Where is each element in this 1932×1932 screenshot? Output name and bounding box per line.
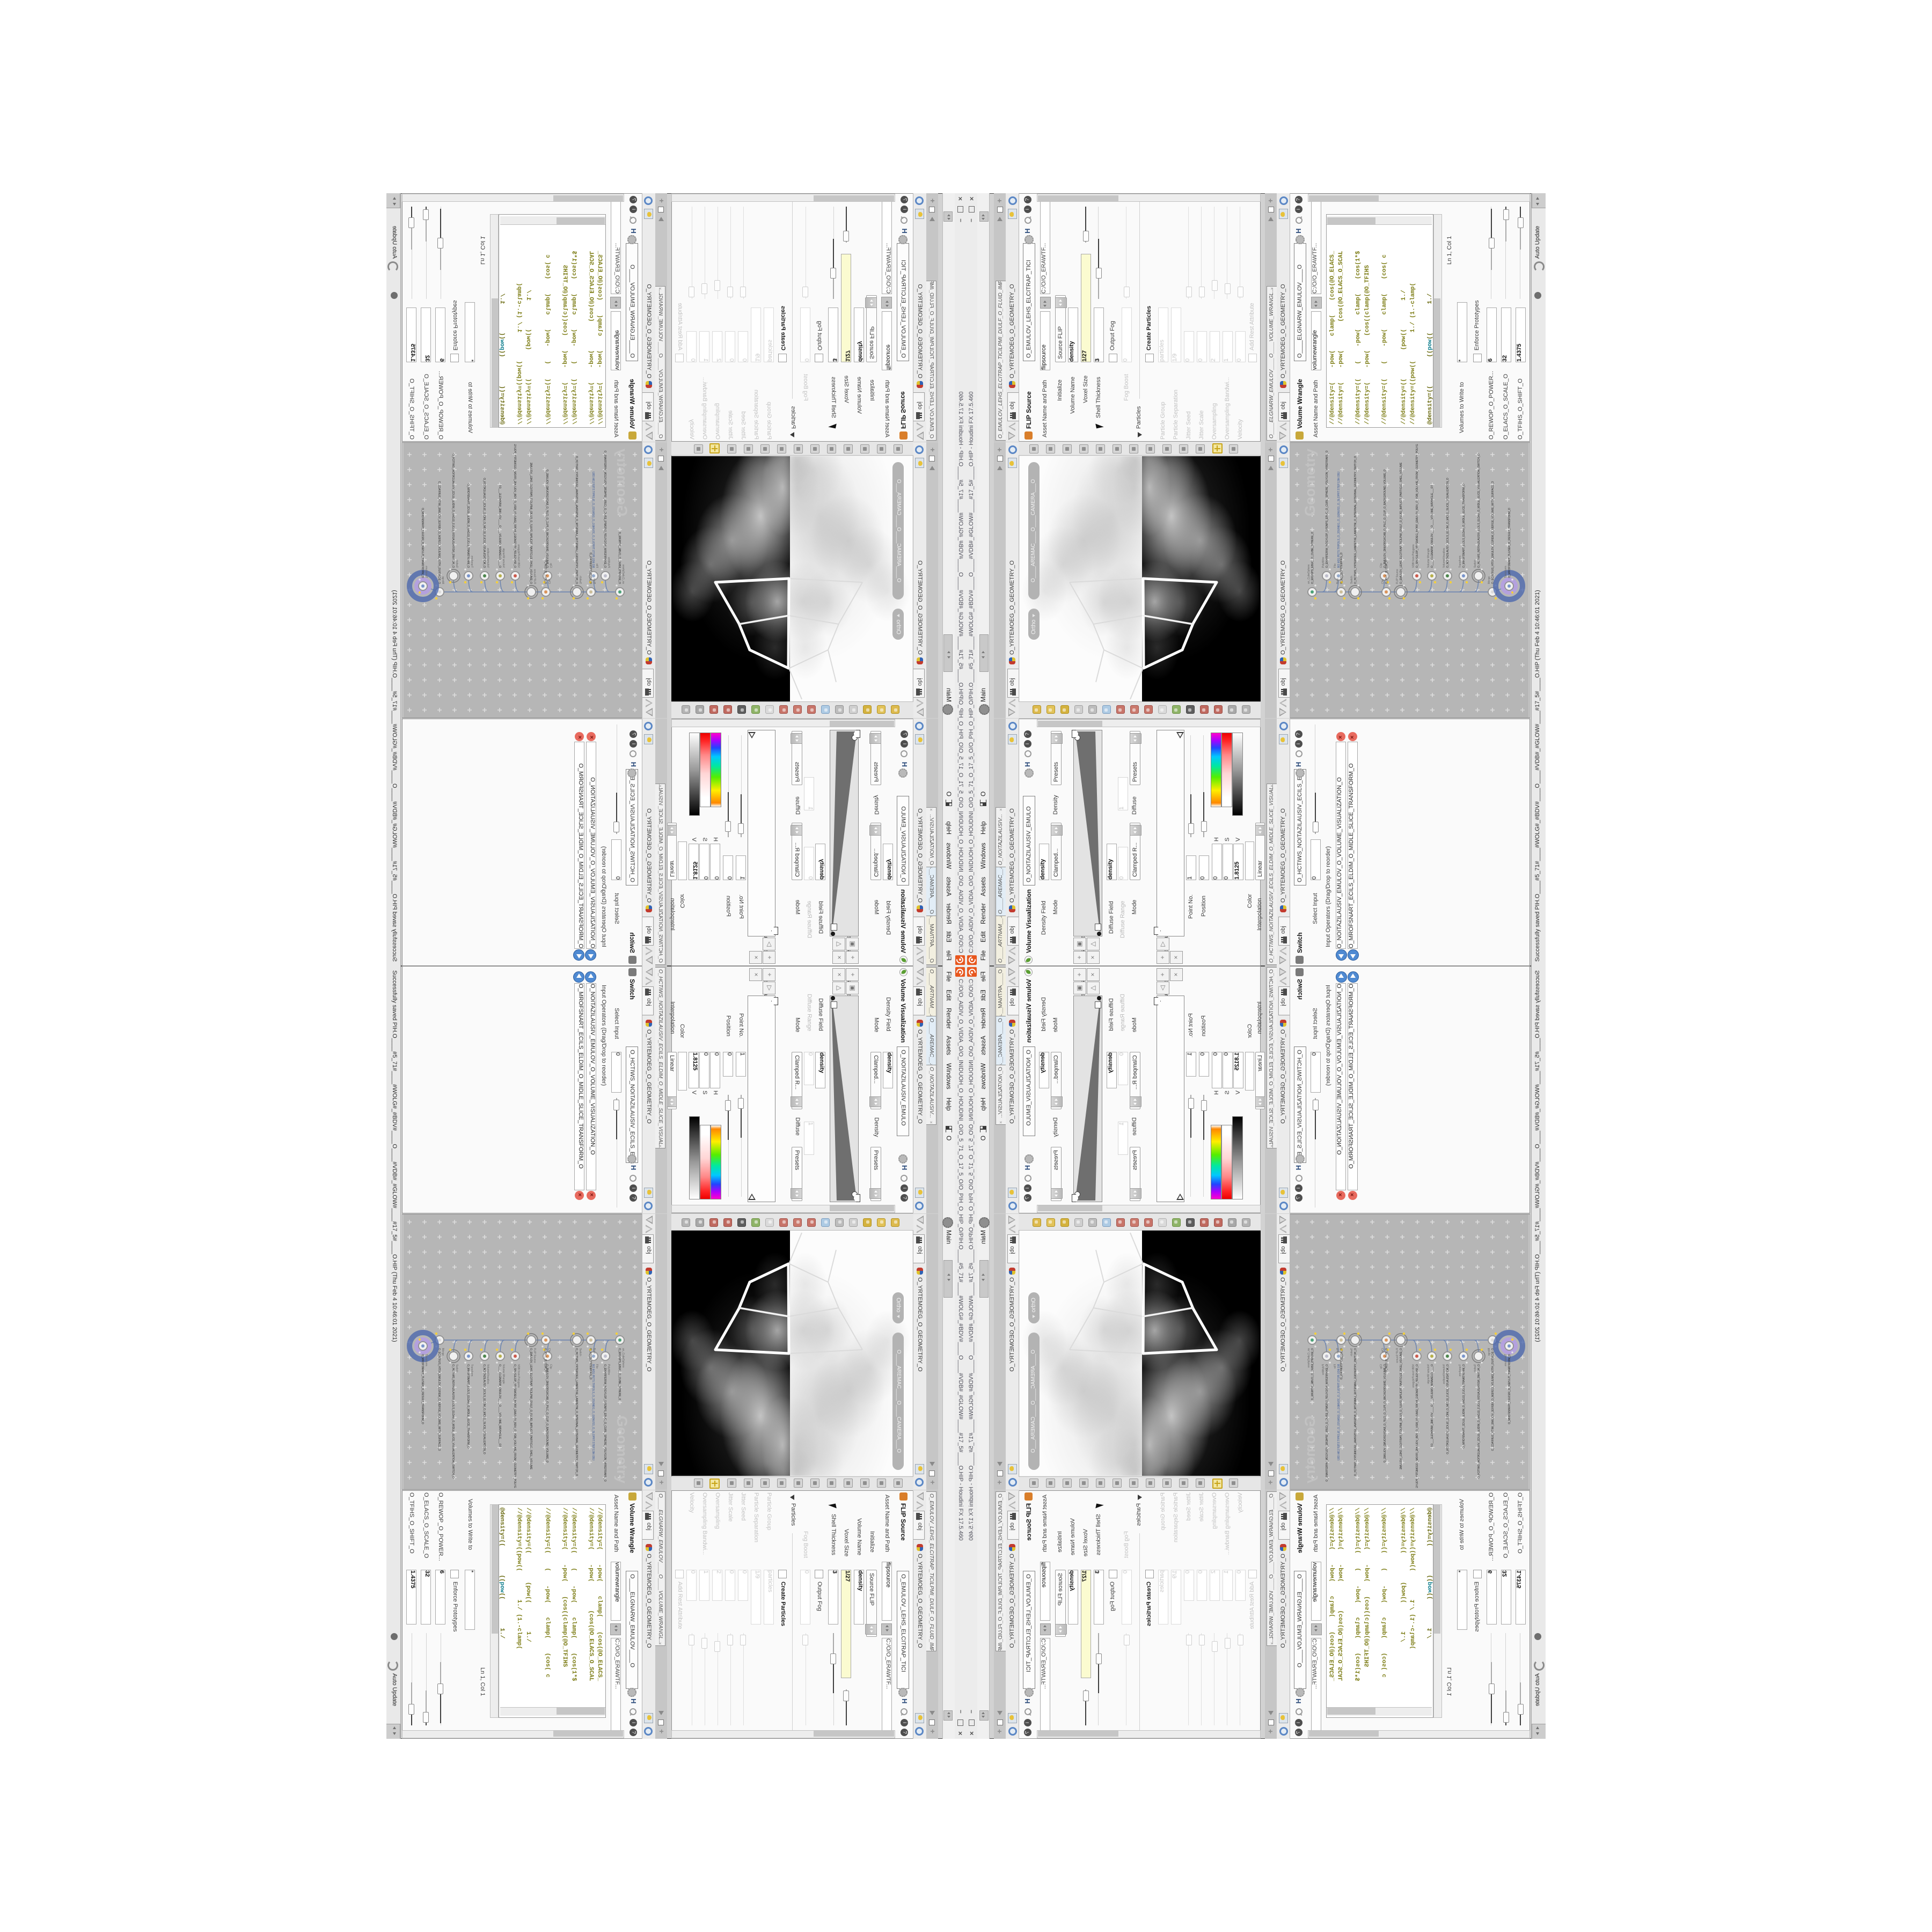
svg-text:O_EMARFERIW_NOGYLOP_ERENPS_EBU: O_EMARFERIW_NOGYLOP_ERENPS_EBUC_O_CUBE_S…: [1326, 1364, 1329, 1482]
svg-text:VolumeVisualiza: VolumeVisualiza: [486, 1364, 489, 1384]
svg-text:O_HCTIWS_NOITAZILAUSIV_ECILS_E: O_HCTIWS_NOITAZILAUSIV_ECILS_ELDIM_O_MID…: [1477, 453, 1481, 568]
svg-text:Transform: Transform: [470, 1364, 473, 1377]
svg-text:Transform: Transform: [1459, 555, 1462, 568]
svg-text:O_HCTIWS_NOITAZILAUSIV_ECILS_E: O_HCTIWS_NOITAZILAUSIV_ECILS_ELDIM_O_MID…: [451, 1364, 455, 1479]
svg-text:O_SNOGILOP_YRTEMOEG_MORF_EMULO: O_SNOGILOP_YRTEMOEG_MORF_EMULOV_BDV_O_VD…: [513, 444, 516, 568]
svg-text:Transform: Transform: [425, 566, 428, 578]
svg-text:O_HCTIWS_YRTEMOEG_LANRETXE_LAN: O_HCTIWS_YRTEMOEG_LANRETXE_LANRETNI_O_IN…: [1354, 1348, 1357, 1476]
svg-text:O_SNOGILOP_YRTEMOEG_MORF_EMULO: O_SNOGILOP_YRTEMOEG_MORF_EMULOV_BDV_O_VD…: [513, 1364, 516, 1488]
svg-text:O_ERENPS_EBUC_O_CUBE_SPHERE_O: O_ERENPS_EBUC_O_CUBE_SPHERE_O: [1311, 1348, 1314, 1400]
svg-text:O_MROFSNART_ECILS_ELDIM_O_MIDL: O_MROFSNART_ECILS_ELDIM_O_MIDLE_SLICE_TR…: [1462, 1364, 1466, 1448]
svg-text:O_HCTIWS_YRTEMOEG_LANRETXE_LAN: O_HCTIWS_YRTEMOEG_LANRETXE_LANRETNI_O_IN…: [575, 456, 578, 584]
svg-text:O_LOOB_YRTEMOEG_O: O_LOOB_YRTEMOEG_O: [589, 552, 592, 584]
svg-text:O____ELGNARW_EMULOV____O____VO: O____ELGNARW_EMULOV____O____VOLUME_WRANG…: [1431, 1364, 1434, 1447]
svg-text:Switch: Switch: [579, 576, 582, 584]
svg-text:O_MROFSNART_TLUSER_O_RESULT_TR: O_MROFSNART_TLUSER_O_RESULT_TRANSFORM_O: [1508, 508, 1511, 578]
svg-text:VDB from Polygons: VDB from Polygons: [517, 544, 520, 568]
svg-text:O_SNOGILOP_YRTEMOEG_MORF_EMULO: O_SNOGILOP_YRTEMOEG_MORF_EMULOV_BDV_O_VD…: [1416, 1364, 1419, 1488]
svg-text:Geometry: Geometry: [614, 449, 630, 516]
svg-text:PolyWire: PolyWire: [607, 557, 610, 568]
svg-text:O_NOITAZILAUSIV_ECILS_ELDIM_O_: O_NOITAZILAUSIV_ECILS_ELDIM_O_MIDLE_SLIC…: [1446, 1364, 1450, 1454]
svg-text:Geometry: Geometry: [614, 1416, 630, 1483]
svg-text:Clip: Clip: [1380, 1364, 1383, 1369]
svg-text:Geometry: Geometry: [1302, 1416, 1318, 1483]
svg-text:Bool: Bool: [1336, 579, 1340, 584]
svg-text:File: File: [595, 1364, 598, 1368]
svg-text:Switch: Switch: [1474, 1364, 1477, 1372]
svg-text:VDB from Polygons: VDB from Polygons: [1412, 1364, 1415, 1388]
svg-text:Switch: Switch: [1350, 576, 1353, 584]
svg-text:O_HCTIWS_NOITAZILAUSIV_ECILS_E: O_HCTIWS_NOITAZILAUSIV_ECILS_ELDIM_O_MID…: [1477, 1364, 1481, 1479]
svg-text:O_ECAFRUS_HTIW_EMULOV_EGREM_O_: O_ECAFRUS_HTIW_EMULOV_EGREM_O_MERGE_VOLU…: [437, 481, 441, 584]
svg-text:Switch: Switch: [579, 1348, 582, 1356]
svg-text:O_MROFSNART_ECILS_ELDIM_O_MIDL: O_MROFSNART_ECILS_ELDIM_O_MIDLE_SLICE_TR…: [1462, 484, 1466, 568]
svg-text:O_NOITAZILAUSIV_ECILS_ELDIM_O_: O_NOITAZILAUSIV_ECILS_ELDIM_O_MIDLE_SLIC…: [482, 1364, 486, 1454]
svg-text:O_PILC_O_CLIP_O: O_PILC_O_CLIP_O: [1385, 560, 1388, 584]
svg-text:O_EMULOV_LEHS_ELCITRAP_TICILPM: O_EMULOV_LEHS_ELCITRAP_TICILPMI_DIULF_O_…: [529, 1348, 532, 1470]
svg-text:O_ERENPS_EBUC_O_CUBE_SPHERE_O: O_ERENPS_EBUC_O_CUBE_SPHERE_O: [618, 1348, 621, 1400]
svg-text:O_BMULOV_DNUORGKCAB_O_PILC_O_C: O_BMULOV_DNUORGKCAB_O_PILC_O_CLIP_O_BACK…: [1384, 469, 1387, 568]
svg-text:an_CubeSphere: an_CubeSphere: [621, 1348, 625, 1368]
svg-text:O_EMULOV_LEHS_ELCITRAP_TICILPM: O_EMULOV_LEHS_ELCITRAP_TICILPMI_DIULF_O_…: [1400, 1348, 1403, 1470]
svg-text:Volume Wrangle: Volume Wrangle: [1427, 548, 1430, 568]
svg-text:Transform: Transform: [425, 1354, 428, 1366]
svg-text:VDB from Polygons: VDB from Polygons: [1412, 544, 1415, 568]
svg-text:O_MROFSNART_TLUSER_O_RESULT_TR: O_MROFSNART_TLUSER_O_RESULT_TRANSFORM_O: [421, 508, 424, 578]
svg-text:VolumeVisualiza: VolumeVisualiza: [1443, 548, 1446, 568]
svg-text:FLIP Source: FLIP Source: [533, 569, 536, 584]
svg-text:PolyWire: PolyWire: [607, 1364, 610, 1375]
svg-text:O_NOITAZILAUSIV_ECILS_ELDIM_O_: O_NOITAZILAUSIV_ECILS_ELDIM_O_MIDLE_SLIC…: [482, 478, 486, 568]
svg-text:Merge: Merge: [441, 576, 444, 584]
svg-text:O_BMULOV_DNUORGKCAB_O_PILC_O_C: O_BMULOV_DNUORGKCAB_O_PILC_O_CLIP_O_BACK…: [545, 469, 548, 568]
svg-text:Merge: Merge: [441, 1348, 444, 1356]
svg-text:Bool: Bool: [592, 579, 596, 584]
svg-text:VolumeVisualiza: VolumeVisualiza: [486, 548, 489, 568]
svg-text:O_ERENPS_EBUC_O_CUBE_SPHERE_O: O_ERENPS_EBUC_O_CUBE_SPHERE_O: [618, 532, 621, 584]
svg-text:O_LOOB_YRTEMOEG_O: O_LOOB_YRTEMOEG_O: [1340, 552, 1343, 584]
svg-text:O_EMARFERIW_NOGYLOP_ERENPS_EBU: O_EMARFERIW_NOGYLOP_ERENPS_EBUC_O_CUBE_S…: [1326, 450, 1329, 568]
svg-text:Volume Wrangle: Volume Wrangle: [502, 1364, 505, 1384]
svg-text:O_BMULOV_DNUORGKCAB_O_PILC_O_C: O_BMULOV_DNUORGKCAB_O_PILC_O_CLIP_O_BACK…: [1384, 1364, 1387, 1463]
svg-text:File: File: [1334, 1364, 1337, 1368]
svg-text:File: File: [595, 563, 598, 568]
svg-text:Switch: Switch: [1474, 560, 1477, 568]
svg-text:Transform: Transform: [1504, 1354, 1507, 1366]
svg-text:O_LOOB_YRTEMOEG_O: O_LOOB_YRTEMOEG_O: [589, 1348, 592, 1380]
svg-text:O_PILC_O_CLIP_O: O_PILC_O_CLIP_O: [544, 560, 547, 584]
svg-text:O_ECAFRUS_HTIW_EMULOV_EGREM_O_: O_ECAFRUS_HTIW_EMULOV_EGREM_O_MERGE_VOLU…: [1491, 481, 1495, 584]
svg-text:Merge: Merge: [1488, 576, 1491, 584]
svg-text:Clip: Clip: [1381, 1348, 1385, 1353]
svg-text:O_LOOB_YRTEMOEG_O: O_LOOB_YRTEMOEG_O: [1340, 1348, 1343, 1380]
svg-text:O____ELGNARW_EMULOV____O____VO: O____ELGNARW_EMULOV____O____VOLUME_WRANG…: [498, 1364, 501, 1447]
svg-text:O____ELGNARW_EMULOV____O____VO: O____ELGNARW_EMULOV____O____VOLUME_WRANG…: [1431, 485, 1434, 568]
svg-text:PolyWire: PolyWire: [1322, 557, 1325, 568]
svg-text:Switch: Switch: [455, 560, 458, 568]
svg-text:O_MROFSNART_TLUSER_O_RESULT_TR: O_MROFSNART_TLUSER_O_RESULT_TRANSFORM_O: [421, 1354, 424, 1424]
svg-text:O_HCTIWS_YRTEMOEG_LANRETXE_LAN: O_HCTIWS_YRTEMOEG_LANRETXE_LANRETNI_O_IN…: [1354, 456, 1357, 584]
svg-text:O_SNOGILOP_YRTEMOEG_MORF_EMULO: O_SNOGILOP_YRTEMOEG_MORF_EMULOV_BDV_O_VD…: [1416, 444, 1419, 568]
svg-text:Clip: Clip: [1381, 579, 1385, 584]
svg-text:O_ECAFRUS_HTIW_EMULOV_EGREM_O_: O_ECAFRUS_HTIW_EMULOV_EGREM_O_MERGE_VOLU…: [437, 1348, 441, 1451]
svg-text:O_BMULOV_DNUORGKCAB_O_PILC_O_C: O_BMULOV_DNUORGKCAB_O_PILC_O_CLIP_O_BACK…: [545, 1364, 548, 1463]
svg-text:an_CubeSphere: an_CubeSphere: [621, 564, 625, 584]
svg-text:O_MROFSNART_ECILS_ELDIM_O_MIDL: O_MROFSNART_ECILS_ELDIM_O_MIDLE_SLICE_TR…: [466, 1364, 470, 1448]
svg-text:Switch: Switch: [1350, 1348, 1353, 1356]
svg-text:FLIP Source: FLIP Source: [1396, 1348, 1399, 1363]
svg-text:O_EMULOV_LEHS_ELCITRAP_TICILPM: O_EMULOV_LEHS_ELCITRAP_TICILPMI_DIULF_O_…: [1400, 462, 1403, 584]
svg-text:File: File: [1334, 563, 1337, 568]
svg-text:Clip: Clip: [1380, 563, 1383, 568]
svg-text:Transform: Transform: [1504, 566, 1507, 578]
svg-text:Bool: Bool: [592, 1348, 596, 1353]
svg-text:O_HCTIWS_YRTEMOEG_LANRETXE_LAN: O_HCTIWS_YRTEMOEG_LANRETXE_LANRETNI_O_IN…: [575, 1348, 578, 1476]
svg-text:Geometry: Geometry: [1302, 449, 1318, 516]
svg-text:FLIP Source: FLIP Source: [1396, 569, 1399, 584]
svg-text:O_EMARFERIW_NOGYLOP_ERENPS_EBU: O_EMARFERIW_NOGYLOP_ERENPS_EBUC_O_CUBE_S…: [603, 1364, 606, 1482]
svg-text:O_PILC_O_CLIP_O: O_PILC_O_CLIP_O: [1385, 1348, 1388, 1372]
svg-text:Volume Wrangle: Volume Wrangle: [502, 548, 505, 568]
svg-text:Transform: Transform: [1459, 1364, 1462, 1377]
svg-text:an_CubeSphere: an_CubeSphere: [1307, 1348, 1311, 1368]
svg-text:O____ELGNARW_EMULOV____O____VO: O____ELGNARW_EMULOV____O____VOLUME_WRANG…: [498, 485, 501, 568]
svg-text:O_EMULOV_LEHS_ELCITRAP_TICILPM: O_EMULOV_LEHS_ELCITRAP_TICILPMI_DIULF_O_…: [529, 462, 532, 584]
svg-text:PolyWire: PolyWire: [1322, 1364, 1325, 1375]
svg-text:Clip: Clip: [549, 1364, 552, 1369]
svg-text:Volume Wrangle: Volume Wrangle: [1427, 1364, 1430, 1384]
svg-text:Clip: Clip: [547, 1348, 551, 1353]
svg-text:O_HCTIWS_NOITAZILAUSIV_ECILS_E: O_HCTIWS_NOITAZILAUSIV_ECILS_ELDIM_O_MID…: [451, 453, 455, 568]
svg-text:Clip: Clip: [547, 579, 551, 584]
svg-text:VDB from Polygons: VDB from Polygons: [517, 1364, 520, 1388]
svg-text:Bool: Bool: [1336, 1348, 1340, 1353]
svg-text:O_NOITAZILAUSIV_ECILS_ELDIM_O_: O_NOITAZILAUSIV_ECILS_ELDIM_O_MIDLE_SLIC…: [1446, 478, 1450, 568]
svg-text:Switch: Switch: [455, 1364, 458, 1372]
svg-text:O_MROFSNART_ECILS_ELDIM_O_MIDL: O_MROFSNART_ECILS_ELDIM_O_MIDLE_SLICE_TR…: [466, 484, 470, 568]
svg-text:O_PILC_O_CLIP_O: O_PILC_O_CLIP_O: [544, 1348, 547, 1372]
svg-text:Clip: Clip: [549, 563, 552, 568]
svg-text:O_ERENPS_EBUC_O_CUBE_SPHERE_O: O_ERENPS_EBUC_O_CUBE_SPHERE_O: [1311, 532, 1314, 584]
svg-text:VolumeVisualiza: VolumeVisualiza: [1443, 1364, 1446, 1384]
svg-text:FLIP Source: FLIP Source: [533, 1348, 536, 1363]
svg-text:O_MROFSNART_TLUSER_O_RESULT_TR: O_MROFSNART_TLUSER_O_RESULT_TRANSFORM_O: [1508, 1354, 1511, 1424]
svg-text:Merge: Merge: [1488, 1348, 1491, 1356]
svg-text:Transform: Transform: [470, 555, 473, 568]
svg-text:O_ECAFRUS_HTIW_EMULOV_EGREM_O_: O_ECAFRUS_HTIW_EMULOV_EGREM_O_MERGE_VOLU…: [1491, 1348, 1495, 1451]
svg-text:an_CubeSphere: an_CubeSphere: [1307, 564, 1311, 584]
svg-text:O_EMARFERIW_NOGYLOP_ERENPS_EBU: O_EMARFERIW_NOGYLOP_ERENPS_EBUC_O_CUBE_S…: [603, 450, 606, 568]
